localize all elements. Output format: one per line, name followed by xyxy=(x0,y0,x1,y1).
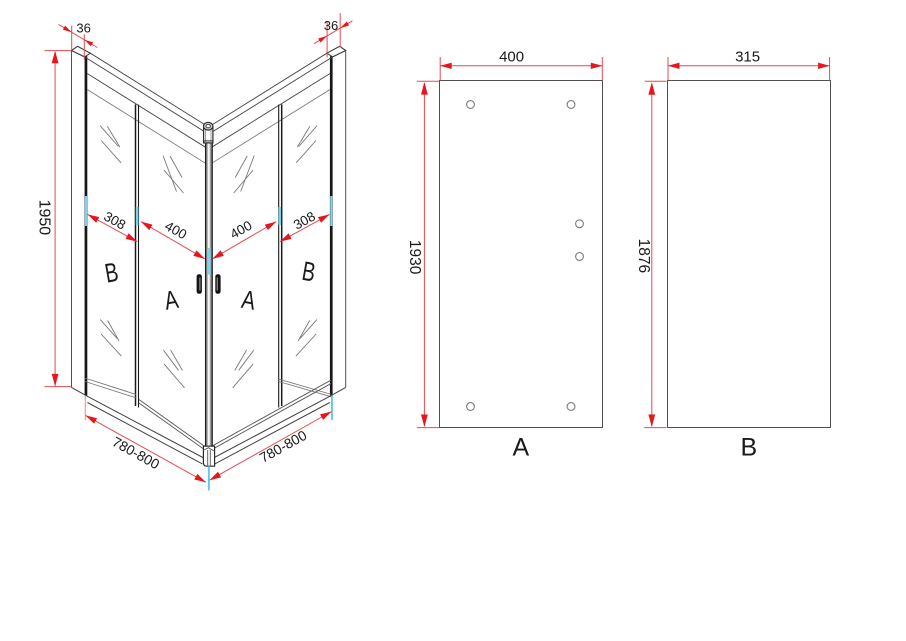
svg-text:1876: 1876 xyxy=(635,239,652,273)
svg-text:A: A xyxy=(512,433,529,461)
svg-text:36: 36 xyxy=(76,21,90,36)
svg-text:1930: 1930 xyxy=(406,240,423,275)
svg-text:315: 315 xyxy=(735,49,760,66)
svg-text:1950: 1950 xyxy=(36,200,53,236)
svg-text:400: 400 xyxy=(499,49,524,66)
svg-text:36: 36 xyxy=(324,18,338,33)
svg-text:B: B xyxy=(741,433,758,461)
